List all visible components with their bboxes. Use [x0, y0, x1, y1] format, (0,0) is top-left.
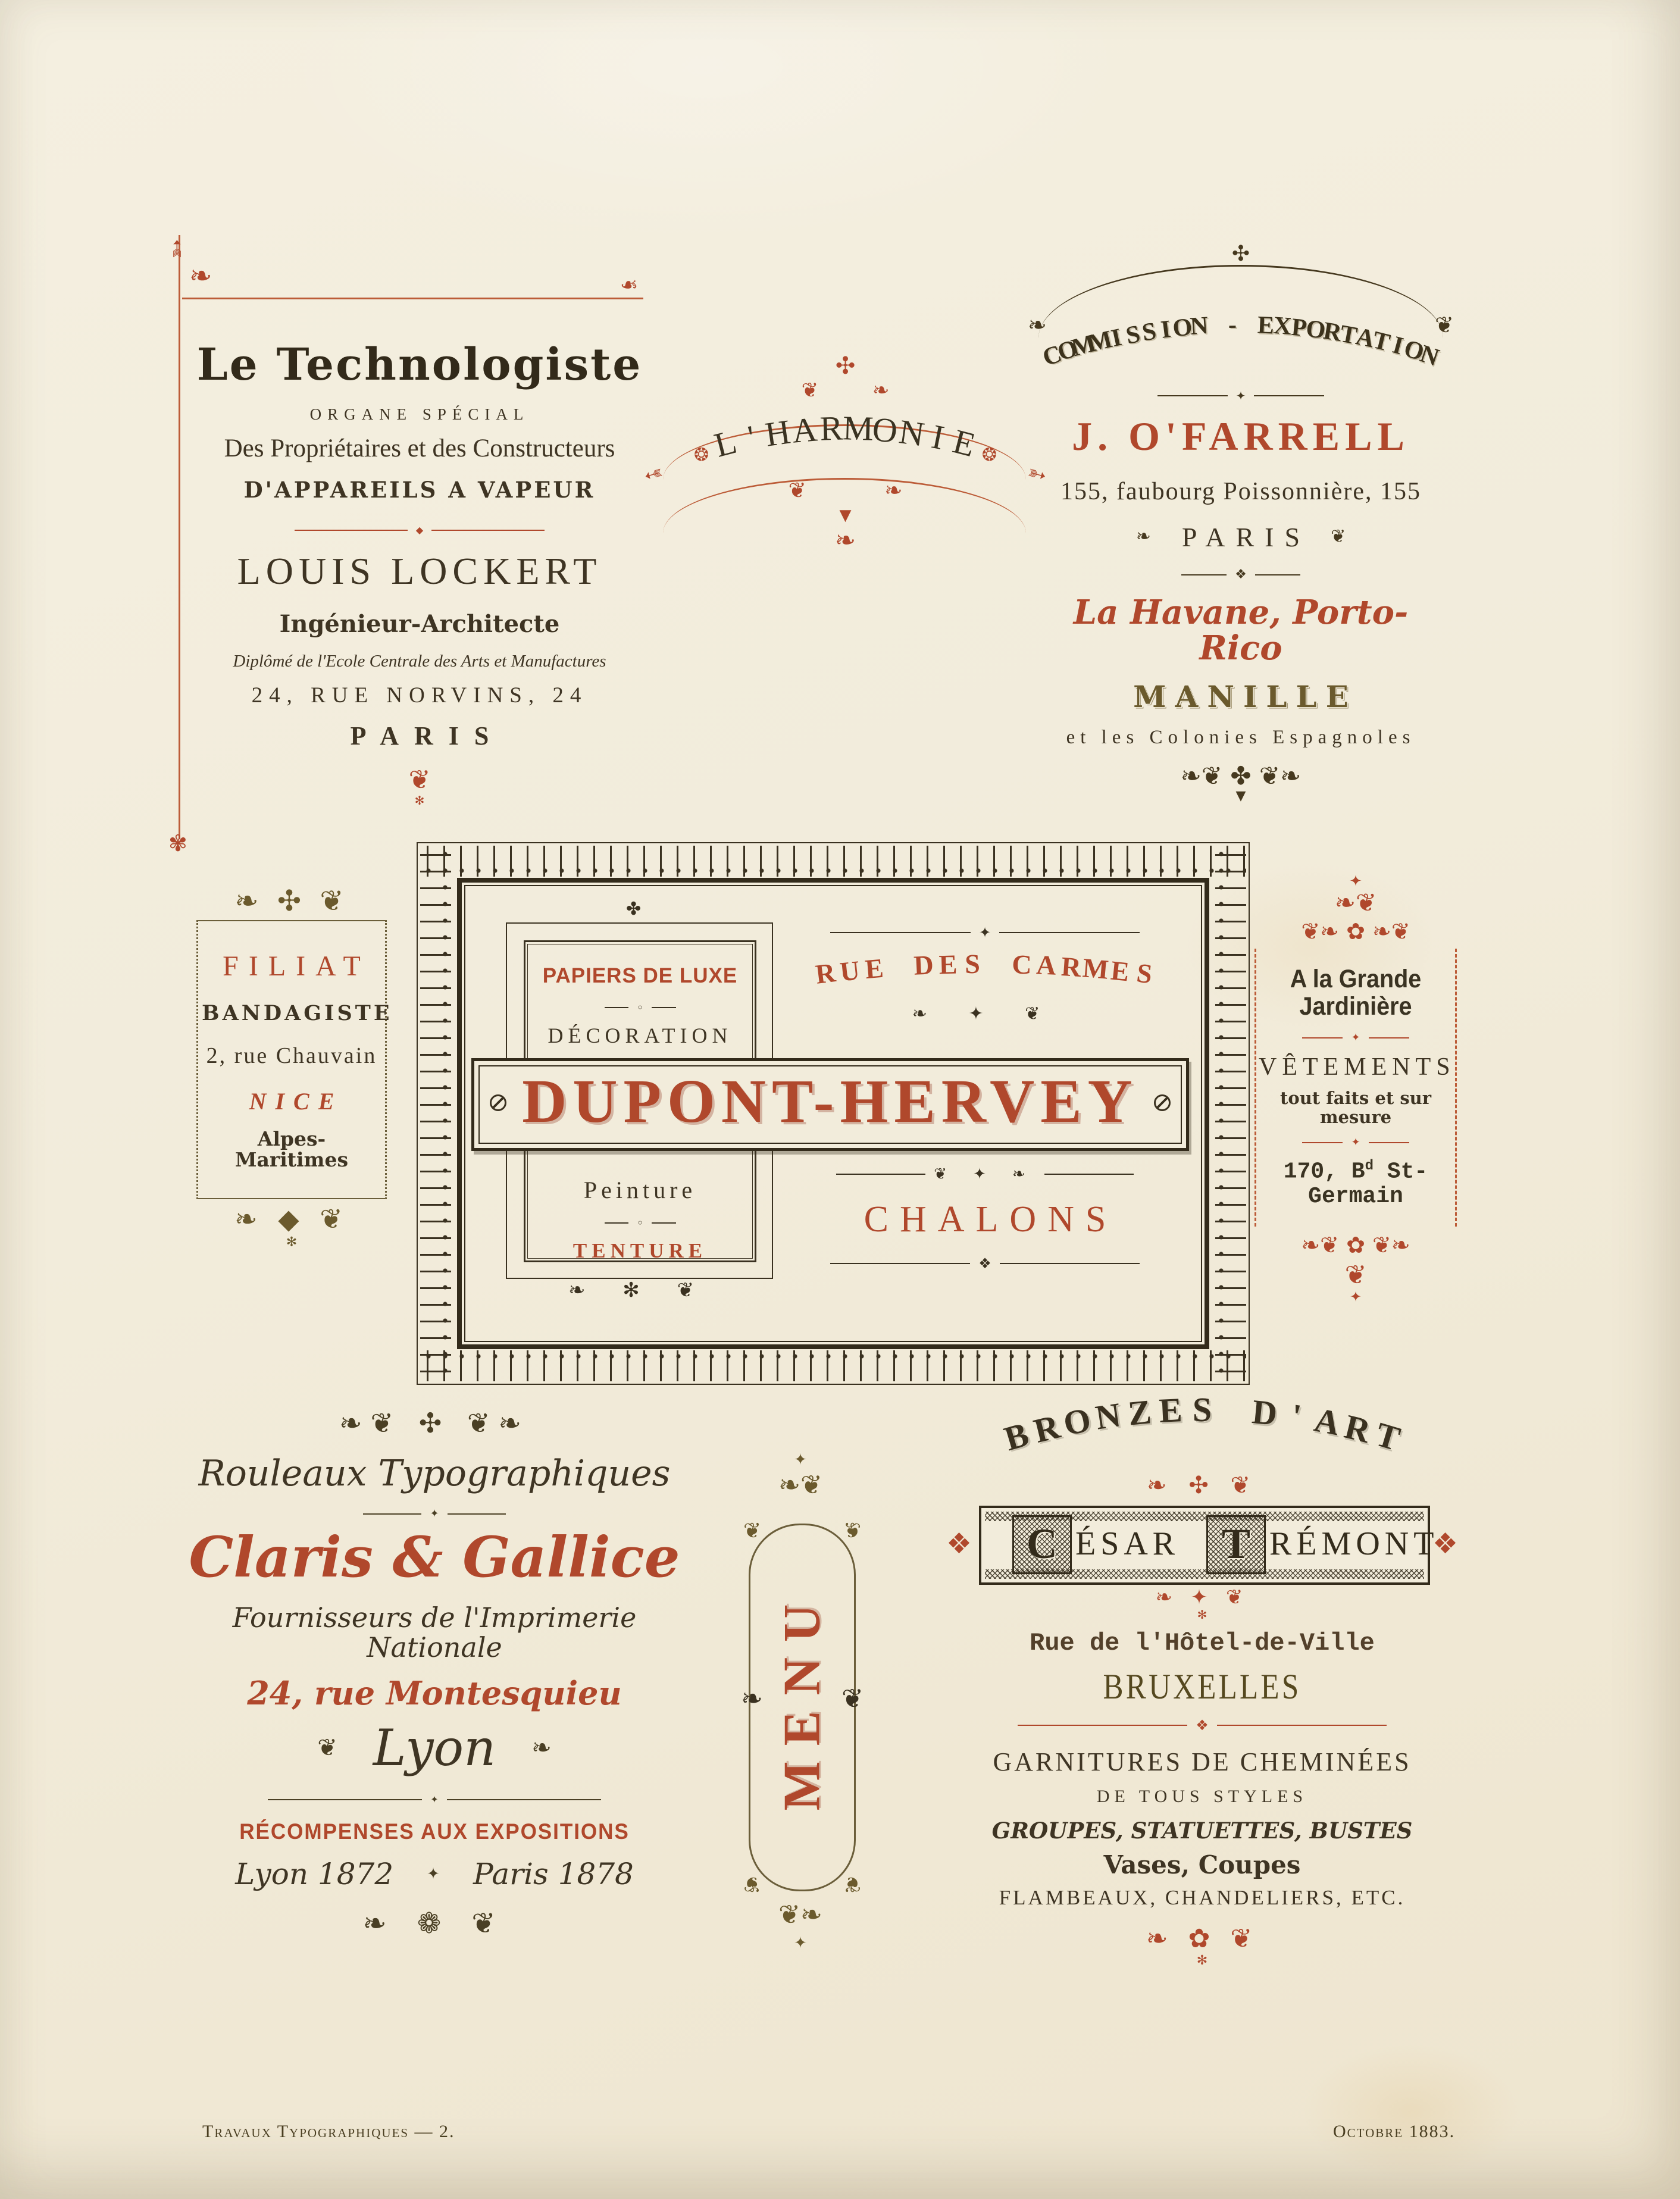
- dupont-panel-line3: Peinture: [525, 1177, 755, 1203]
- technologiste-bottom-ornament-icon: ❦: [190, 767, 649, 793]
- corner-pendant-icon: ✾: [168, 832, 187, 855]
- ofarrell-rule1: ✦: [1157, 390, 1324, 402]
- bronzes-initial2: T: [1208, 1517, 1264, 1571]
- filiat-tip-icon: ✻: [196, 1236, 387, 1249]
- street-top-icon: ✦: [979, 925, 991, 940]
- bowtie-icon: ❖: [1235, 568, 1247, 581]
- bronzes-line3: GROUPES, STATUETTES, BUSTES: [964, 1819, 1440, 1843]
- technologiste-name: Louis Lockert: [190, 550, 649, 592]
- ad-dupont-card: ✤ PAPIERS DE LUXE ◦ DÉCORATION Peinture …: [417, 842, 1250, 1385]
- panel-rule2: ◦: [605, 1217, 676, 1229]
- technologiste-line1: Des Propriétaires et des Constructeurs: [190, 435, 649, 462]
- technologiste-title: Le Technologiste: [190, 342, 649, 389]
- star-icon: ✦: [1351, 1033, 1360, 1043]
- star-icon: ✦: [430, 1795, 438, 1804]
- bronzes-header: BRONZES D'ART: [994, 1393, 1410, 1476]
- claris-bottom-ornament-icon: ❧ ❁ ❦: [179, 1909, 690, 1938]
- award-divider-icon: ✦: [427, 1866, 440, 1882]
- bronzes-line5: FLAMBEAUX, CHANDELIERS, ETC.: [964, 1887, 1440, 1909]
- bronzes-rule: ❖: [1018, 1718, 1387, 1732]
- card-border-bottom: [420, 1350, 1246, 1381]
- corner-end-icon: ❧: [620, 275, 638, 296]
- claris-header: Rouleaux Typographiques: [179, 1454, 690, 1493]
- city-top-icon: ❦ ✦ ❧: [934, 1166, 1036, 1182]
- star-icon: ✦: [430, 1509, 439, 1519]
- claris-award1: Lyon 1872: [235, 1857, 393, 1891]
- jardiniere-address: 170, Bd St-Germain: [1259, 1159, 1453, 1209]
- city-bottom-ornament: ❖: [830, 1256, 1140, 1271]
- dupont-panel-line1: PAPIERS DE LUXE: [525, 965, 755, 987]
- filiat-name: FILIAT: [202, 951, 381, 982]
- technologiste-address: 24, Rue Norvins, 24: [190, 684, 649, 708]
- bronzes-initial1-box: C: [1012, 1515, 1072, 1574]
- dupont-city: CHALONS: [809, 1200, 1160, 1240]
- technologiste-city: PARIS: [190, 722, 649, 750]
- jardiniere-name: A la Grande Jardinière: [1266, 965, 1445, 1021]
- jardiniere-rule1: ✦: [1302, 1033, 1409, 1043]
- ad-claris: ❧❦ ✣ ❦❧ Rouleaux Typographiques ✦ Claris…: [179, 1409, 690, 1938]
- bronzes-street: Rue de l'Hôtel-de-Ville: [964, 1630, 1440, 1657]
- jardiniere-rule2: ✦: [1302, 1137, 1409, 1148]
- bronzes-crest-icon: ❧ ✣ ❦: [964, 1474, 1440, 1497]
- star-icon: ✦: [1351, 1137, 1360, 1148]
- claris-line1: Fournisseurs de l'Imprimerie Nationale: [179, 1603, 690, 1662]
- panel-top-icon: ✤: [626, 900, 641, 918]
- claris-top-ornament-icon: ❧❦ ✣ ❦❧: [179, 1409, 690, 1437]
- ofarrell-bottom-tip-icon: ▼: [1033, 790, 1449, 803]
- menu-corner-icon: ❦: [743, 1521, 761, 1542]
- harmonie-title: L'HARMONIE: [679, 411, 1012, 477]
- ofarrell-line1: La Havane, Porto-Rico: [1033, 595, 1449, 667]
- filiat-role: BANDAGISTE: [202, 1002, 381, 1025]
- claris-rule2: ✦: [268, 1795, 601, 1804]
- ad-jardiniere: ✦ ❧❦ ❦❧ ✿ ❧❦ A la Grande Jardinière ✦ VÊ…: [1254, 874, 1457, 1304]
- ad-bronzes: BRONZES D'ART ❧ ✣ ❦ ❖ ❖ C ÉSAR T RÉMONT …: [964, 1393, 1440, 1967]
- jardiniere-band-bottom-icon: ❧❦ ✿ ❦❧: [1254, 1234, 1457, 1256]
- menu-corner-icon: ❦: [743, 1873, 761, 1894]
- ofarrell-rule2: ❖: [1181, 568, 1300, 581]
- dupont-name: DUPONT-HERVEY: [474, 1061, 1186, 1142]
- claris-address: 24, rue Montesquieu: [179, 1676, 690, 1710]
- ad-filiat: ❧ ✣ ❦ FILIAT BANDAGISTE 2, rue Chauvain …: [196, 887, 387, 1249]
- ad-ofarrell: ✣ ❧ ❦ COMMISSION - EXPORTATION ✦ J. O'FA…: [1033, 247, 1449, 803]
- ofarrell-header: COMMISSION - EXPORTATION: [1038, 312, 1443, 390]
- ofarrell-city-row: ❧ PARIS ❦: [1033, 521, 1449, 553]
- city-flourish-right-icon: ❦: [1331, 528, 1346, 546]
- bronzes-initial1: C: [1014, 1517, 1070, 1571]
- jardiniere-band-top-icon: ❦❧ ✿ ❧❦: [1254, 920, 1457, 943]
- corner-rule-vertical: [179, 235, 180, 839]
- jardiniere-line1: VÊTEMENTS: [1259, 1054, 1453, 1081]
- bronzes-initial2-box: T: [1206, 1515, 1266, 1574]
- jardiniere-finial-icon: ❧❦: [1254, 890, 1457, 915]
- filiat-crest-icon: ❧ ✣ ❦: [196, 887, 387, 915]
- card-border-top: [420, 846, 1246, 877]
- specimen-page: ➳ ❧ ❧ ✾ Le Technologiste ORGANE SPÉCIAL …: [0, 0, 1680, 2199]
- technologiste-line2: D'APPAREILS A VAPEUR: [190, 478, 649, 502]
- bronzes-rest1: ÉSAR: [1075, 1508, 1180, 1579]
- ofarrell-line3: et les Colonies Espagnoles: [1033, 727, 1449, 749]
- dupont-city-group: ❦ ✦ ❧ CHALONS ❖: [809, 1166, 1160, 1271]
- bowtie-icon: ❖: [1196, 1718, 1209, 1732]
- card-border-left: [420, 846, 451, 1381]
- bronzes-plaque-row: ❖ ❖ C ÉSAR T RÉMONT: [964, 1506, 1440, 1580]
- jardiniere-line2: tout faits et sur mesure: [1259, 1089, 1453, 1127]
- dupont-street-group: ✦ RUE DES CARMES ❧ ✦ ❦: [797, 925, 1172, 1023]
- dupont-panel-line2: DÉCORATION: [525, 1024, 755, 1047]
- ring-icon: ◦: [637, 1002, 644, 1014]
- menu-corner-icon: ❦: [843, 1521, 861, 1542]
- ofarrell-city: PARIS: [1171, 521, 1310, 553]
- jardiniere-tip-star-icon: ✦: [1254, 1290, 1457, 1304]
- filiat-city: NICE: [202, 1088, 381, 1114]
- ofarrell-name: J. O'FARRELL: [1033, 415, 1449, 458]
- plaque-side-left-icon: ❖: [946, 1529, 972, 1558]
- footer-left: Travaux Typographiques — 2.: [202, 2122, 455, 2142]
- ofarrell-address: 155, faubourg Poissonnière, 155: [1033, 478, 1449, 505]
- footer-right: Octobre 1883.: [1333, 2122, 1455, 2142]
- technologiste-subtitle: ORGANE SPÉCIAL: [190, 406, 649, 423]
- menu-leaf-right-icon: ❦: [841, 1686, 864, 1712]
- banner-screw-left: [490, 1094, 506, 1111]
- claris-name: Claris & Gallice: [179, 1528, 690, 1588]
- city-bottom-icon: ❖: [978, 1256, 991, 1271]
- bronzes-rest2: RÉMONT: [1269, 1508, 1438, 1579]
- jardiniere-address-sup: d: [1365, 1158, 1374, 1174]
- city-flourish-right-icon: ❧: [531, 1736, 552, 1760]
- jardiniere-tip-icon: ❦: [1254, 1262, 1457, 1288]
- bronzes-bottom-ornament-icon: ❧ ✿ ❦: [964, 1926, 1440, 1952]
- ring-icon: ◦: [637, 1217, 644, 1229]
- jardiniere-frame: A la Grande Jardinière ✦ VÊTEMENTS tout …: [1254, 949, 1457, 1227]
- city-flourish-left-icon: ❧: [1136, 528, 1151, 546]
- harmonie-top-icon: ✣: [659, 354, 1031, 378]
- dupont-street: RUE DES CARMES: [818, 950, 1152, 1002]
- bronzes-pendant-icon: ❧ ✦ ❦: [964, 1587, 1440, 1607]
- bronzes-bottom-tip-icon: ✻: [964, 1954, 1440, 1967]
- jardiniere-address-pre: 170, B: [1284, 1159, 1365, 1185]
- street-top-ornament: ✦: [830, 925, 1140, 940]
- corner-rule-horizontal: [182, 298, 643, 299]
- technologiste-credential: Diplômé de l'Ecole Centrale des Arts et …: [190, 652, 649, 671]
- panel-bottom-icon: ❧ ✻ ❦: [568, 1280, 709, 1300]
- bronzes-line1: GARNITURES DE CHEMINÉES: [964, 1748, 1440, 1776]
- diamond-icon: ◆: [416, 525, 423, 535]
- ad-technologiste: Le Technologiste ORGANE SPÉCIAL Des Prop…: [190, 321, 649, 806]
- filiat-address: 2, rue Chauvain: [202, 1044, 381, 1068]
- filiat-bottom-ornament-icon: ❧ ◆ ❦: [196, 1205, 387, 1233]
- technologiste-role: Ingénieur-Architecte: [190, 611, 649, 637]
- banner-screw-right: [1154, 1094, 1171, 1111]
- claris-awards: RÉCOMPENSES AUX EXPOSITIONS: [192, 1820, 678, 1844]
- claris-rule1: ✦: [363, 1509, 506, 1519]
- menu-finial-bottom-icon: ❦❧: [738, 1902, 863, 1928]
- city-top-ornament: ❦ ✦ ❧: [836, 1166, 1134, 1182]
- filiat-region: Alpes-Maritimes: [202, 1128, 381, 1171]
- technologiste-tip-icon: ✻: [190, 794, 649, 806]
- bronzes-city: BRUXELLES: [1000, 1668, 1404, 1706]
- corner-scroll-icon: ❧: [189, 262, 212, 289]
- menu-leaf-left-icon: ❧: [741, 1686, 763, 1712]
- bronzes-plaque: C ÉSAR T RÉMONT: [979, 1506, 1430, 1585]
- menu-title: MENU: [772, 1589, 833, 1826]
- ad-menu: ✦ ❧❦ MENU ❦ ❦ ❦ ❦ ❧ ❦ ❦❧ ✦: [738, 1452, 863, 1976]
- diamond-rule: ◆: [295, 525, 545, 535]
- ofarrell-apex-icon: ✣: [1232, 243, 1250, 265]
- ad-harmonie: ✣ ❦ ❧ ➳ ➳ ❂ ❂ L'HARMONIE ❦ ❧ ▼ ❧: [659, 354, 1031, 553]
- menu-frame: MENU ❦ ❦ ❦ ❦ ❧ ❦: [749, 1524, 856, 1891]
- claris-city-row: ❦ Lyon ❧: [179, 1719, 690, 1777]
- menu-finial-top-star-icon: ✦: [738, 1452, 863, 1468]
- menu-finial-top-icon: ❧❦: [738, 1472, 863, 1499]
- jardiniere-finial-star-icon: ✦: [1254, 874, 1457, 889]
- filiat-frame: FILIAT BANDAGISTE 2, rue Chauvain NICE A…: [196, 920, 387, 1199]
- ofarrell-line2: MANILLE: [1033, 681, 1449, 713]
- card-border-right: [1215, 846, 1246, 1381]
- dupont-panel-line4: TENTURE: [525, 1240, 755, 1262]
- menu-finial-bottom-star-icon: ✦: [738, 1935, 863, 1951]
- corner-arrow-icon: ➳: [165, 239, 189, 259]
- bronzes-pendant-tip-icon: ✻: [964, 1609, 1440, 1621]
- claris-award2: Paris 1878: [473, 1857, 634, 1891]
- harmonie-band-icon: ❦ ❧: [659, 380, 1031, 401]
- city-flourish-left-icon: ❦: [317, 1736, 337, 1760]
- bronzes-line4: Vases, Coupes: [964, 1851, 1440, 1878]
- claris-awards-row: Lyon 1872 ✦ Paris 1878: [179, 1857, 690, 1891]
- star-icon: ✦: [1236, 390, 1246, 402]
- claris-city: Lyon: [373, 1719, 496, 1777]
- menu-corner-icon: ❦: [843, 1873, 861, 1894]
- panel-rule1: ◦: [605, 1002, 676, 1014]
- dupont-banner: DUPONT-HERVEY: [471, 1058, 1189, 1151]
- ofarrell-bottom-ornament-icon: ❧❦ ✤ ❦❧: [1033, 764, 1449, 789]
- bronzes-line2: DE TOUS STYLES: [964, 1787, 1440, 1806]
- street-bottom-icon: ❧ ✦ ❦: [797, 1005, 1172, 1023]
